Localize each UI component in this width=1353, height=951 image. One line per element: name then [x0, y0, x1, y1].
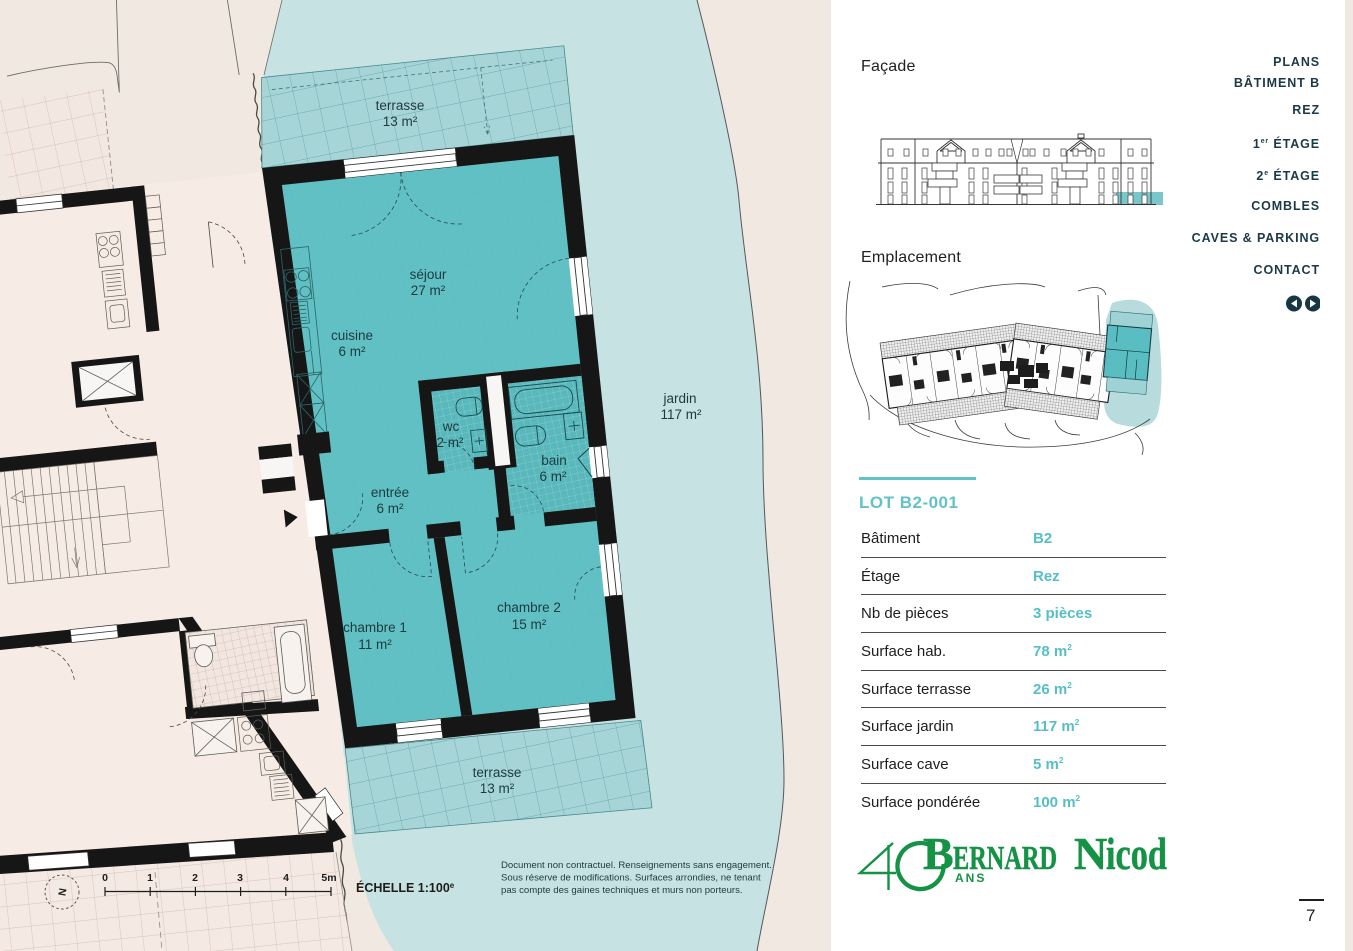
svg-text:Document non contractuel. Rens: Document non contractuel. Renseignements…: [501, 860, 772, 871]
svg-text:ÉCHELLE 1:100e: ÉCHELLE 1:100e: [356, 880, 455, 895]
svg-text:chambre 1: chambre 1: [343, 620, 407, 635]
svg-text:11 m²: 11 m²: [358, 637, 392, 652]
svg-text:icod: icod: [1106, 828, 1167, 879]
svg-text:6 m²: 6 m²: [377, 501, 405, 516]
svg-text:4: 4: [283, 872, 289, 884]
svg-text:entrée: entrée: [371, 485, 409, 500]
svg-text:bain: bain: [541, 453, 567, 468]
svg-text:5m: 5m: [321, 872, 336, 884]
svg-text:cuisine: cuisine: [331, 328, 373, 343]
svg-text:jardin: jardin: [662, 391, 696, 406]
svg-text:terrasse: terrasse: [473, 765, 522, 780]
svg-text:wc: wc: [442, 419, 460, 434]
svg-text:15 m²: 15 m²: [512, 617, 547, 632]
svg-text:séjour: séjour: [410, 267, 447, 282]
svg-text:1: 1: [147, 872, 153, 884]
svg-text:terrasse: terrasse: [376, 98, 425, 113]
svg-text:2: 2: [192, 872, 198, 884]
svg-text:N: N: [1074, 828, 1107, 879]
svg-text:3: 3: [237, 872, 243, 884]
svg-text:ANS: ANS: [955, 871, 986, 885]
svg-text:6 m²: 6 m²: [339, 344, 367, 359]
svg-text:13 m²: 13 m²: [480, 781, 515, 796]
svg-text:27 m²: 27 m²: [411, 283, 446, 298]
svg-text:0: 0: [102, 872, 108, 884]
svg-text:117 m²: 117 m²: [660, 407, 702, 422]
svg-text:pas compte des gaines techniqu: pas compte des gaines techniques et murs…: [501, 885, 743, 896]
svg-text:chambre 2: chambre 2: [497, 600, 561, 615]
svg-text:6 m²: 6 m²: [540, 469, 568, 484]
svg-text:B: B: [923, 828, 954, 879]
svg-text:Sous réserve de modifications.: Sous réserve de modifications. Surfaces …: [501, 873, 761, 884]
svg-text:2 m²: 2 m²: [437, 435, 465, 450]
svg-text:13 m²: 13 m²: [383, 114, 418, 129]
